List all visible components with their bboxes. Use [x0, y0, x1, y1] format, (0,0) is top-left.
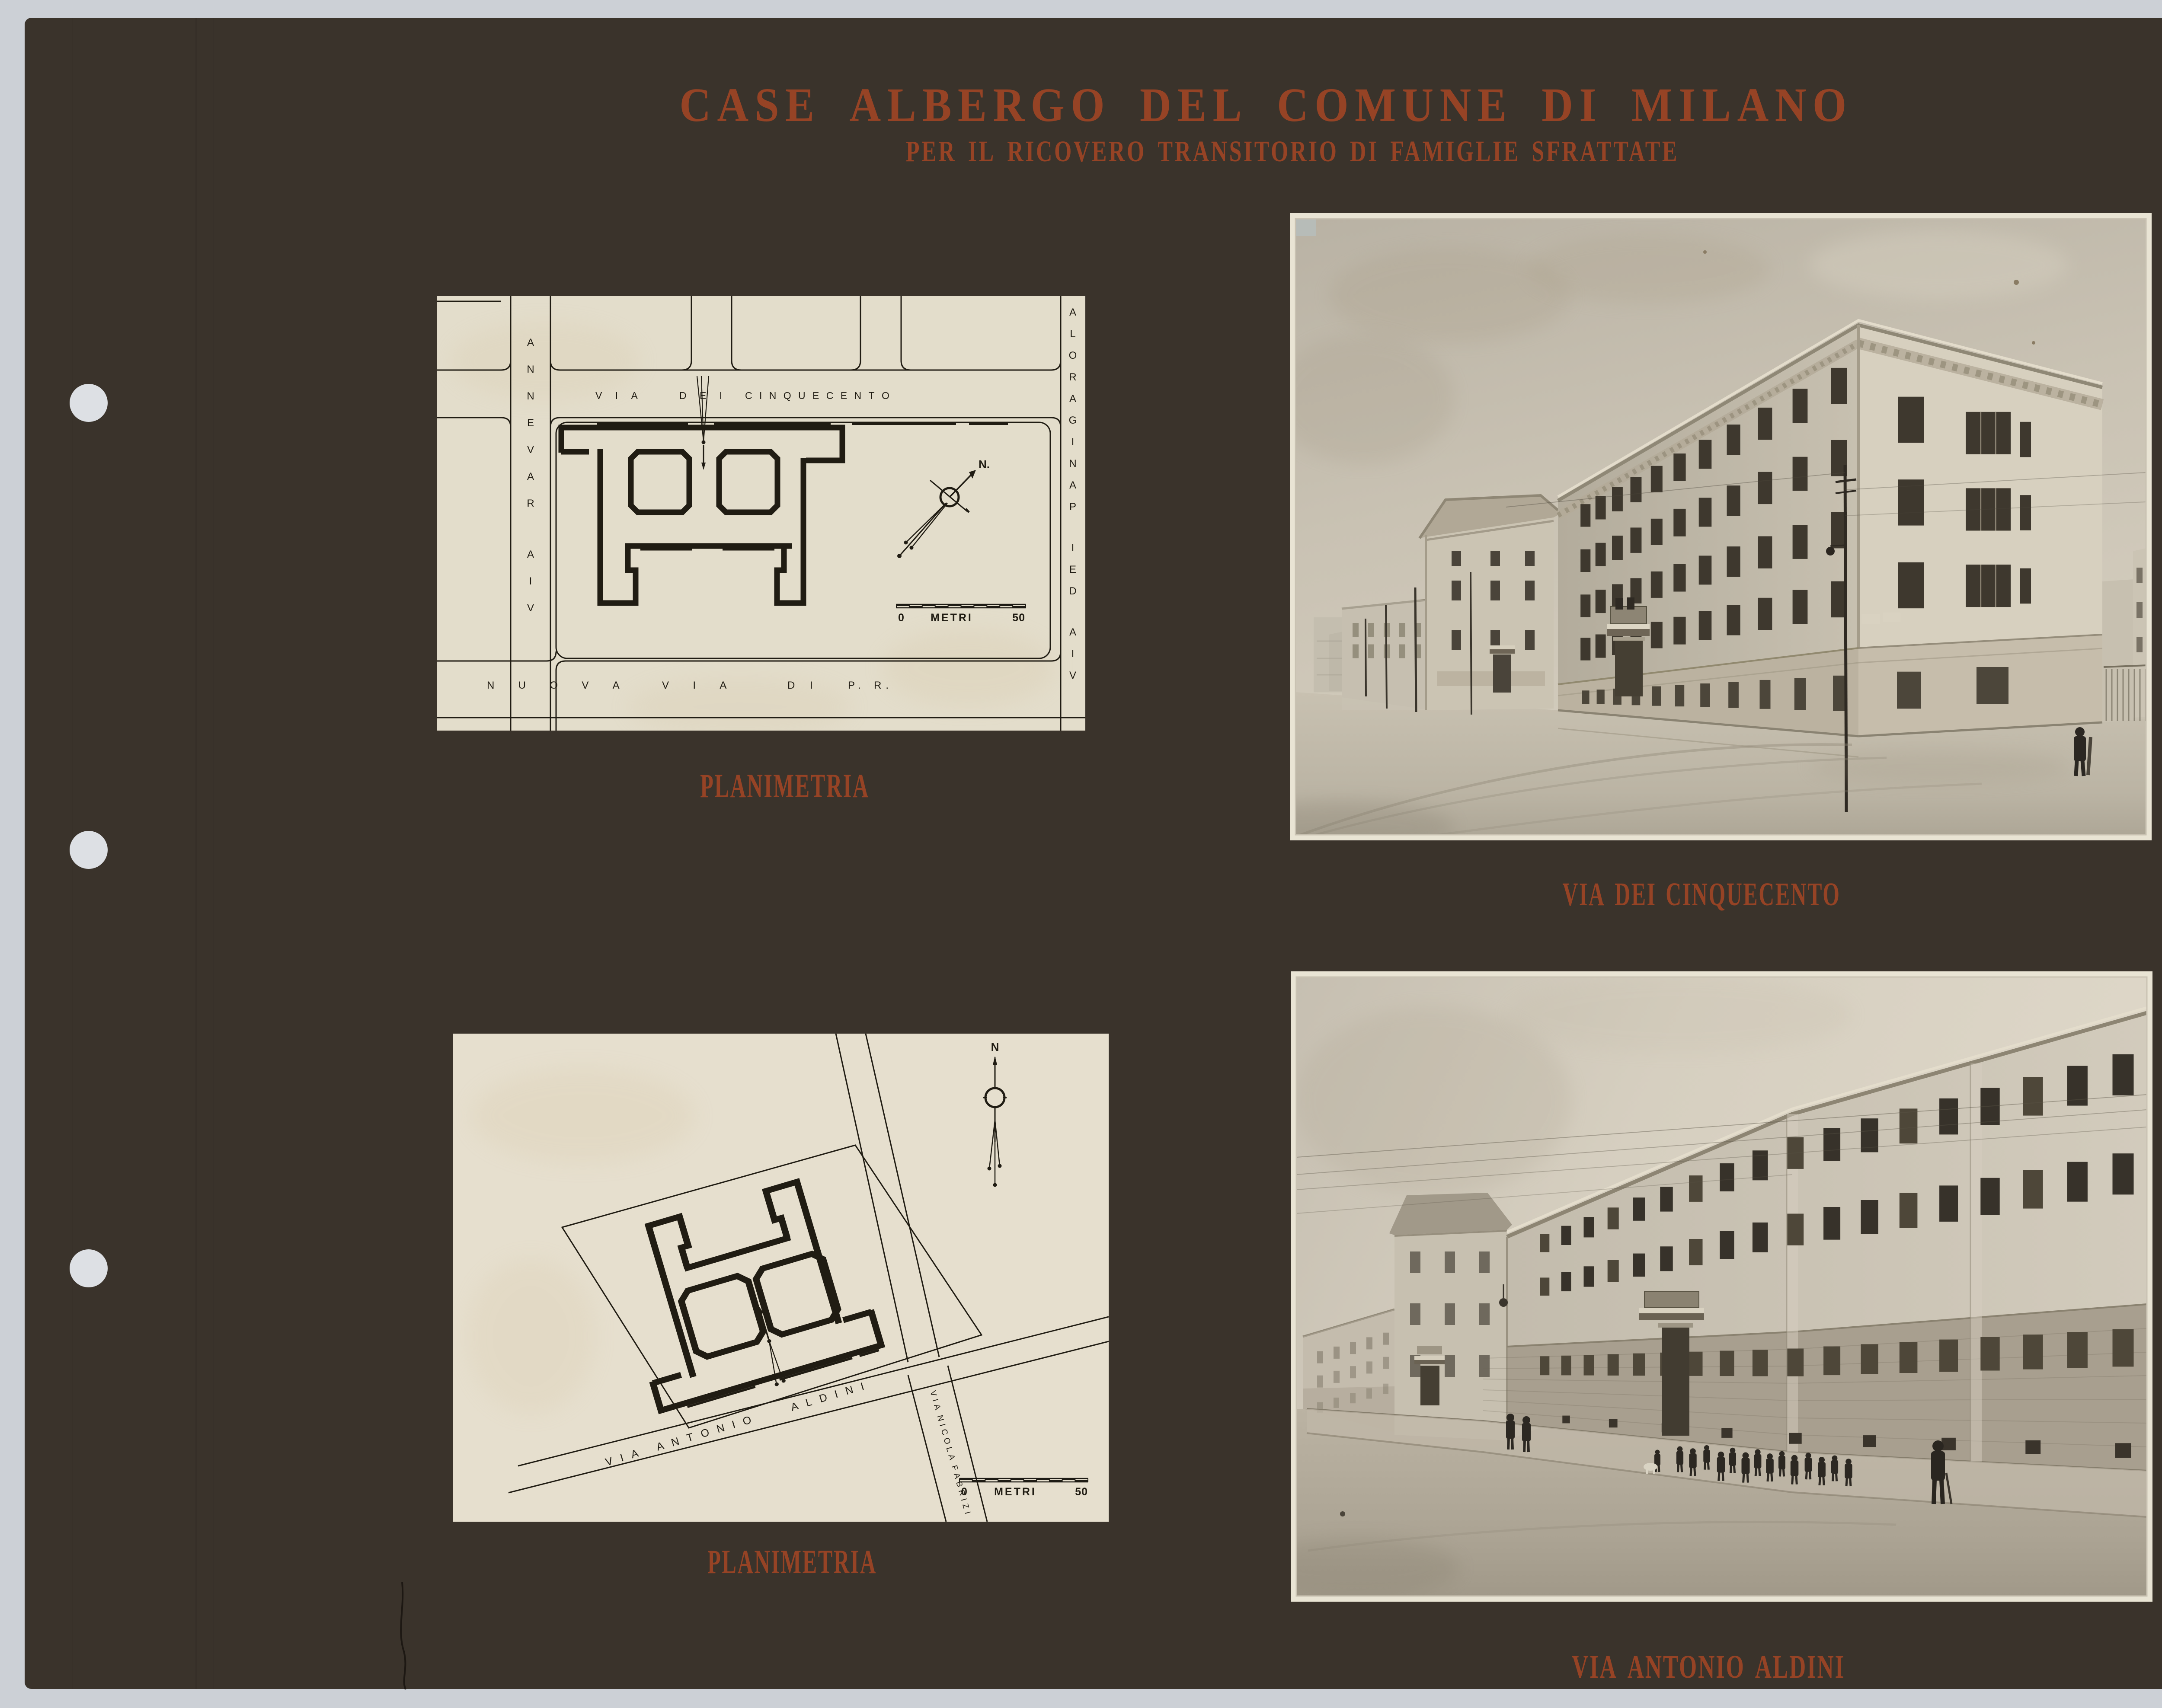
svg-text:D: D	[1069, 585, 1076, 597]
svg-text:N: N	[1069, 458, 1076, 469]
svg-text:A: A	[1069, 393, 1076, 405]
svg-text:P.: P.	[848, 680, 865, 691]
svg-text:O: O	[1069, 350, 1077, 361]
svg-text:D E I: D E I	[679, 390, 727, 401]
svg-text:50: 50	[1012, 612, 1025, 624]
svg-text:V: V	[527, 444, 534, 456]
svg-text:R.: R.	[874, 680, 893, 691]
svg-text:A: A	[527, 337, 534, 348]
svg-text:V I A: V I A	[595, 390, 643, 401]
svg-text:D I: D I	[787, 680, 819, 691]
svg-text:N: N	[527, 364, 534, 375]
svg-text:N: N	[527, 390, 534, 402]
svg-text:I: I	[529, 575, 532, 587]
svg-text:V I A: V I A	[662, 680, 732, 691]
svg-text:A: A	[527, 471, 534, 482]
svg-text:0: 0	[898, 612, 904, 624]
svg-text:N U O V A: N U O V A	[487, 680, 626, 691]
svg-text:V: V	[527, 602, 534, 614]
svg-text:METRI: METRI	[994, 1486, 1036, 1498]
svg-text:L: L	[1070, 328, 1075, 340]
svg-text:E: E	[1069, 564, 1076, 575]
svg-text:A: A	[527, 549, 534, 560]
svg-text:A: A	[1069, 626, 1076, 638]
svg-text:R: R	[1069, 371, 1076, 383]
svg-text:I: I	[1071, 436, 1075, 448]
svg-text:METRI: METRI	[931, 612, 973, 624]
svg-text:P: P	[1069, 501, 1076, 513]
svg-text:C I N Q U E C E N T O: C I N Q U E C E N T O	[745, 390, 892, 401]
svg-text:I: I	[1071, 542, 1075, 554]
svg-text:A: A	[1069, 479, 1076, 491]
svg-text:I: I	[1071, 648, 1075, 660]
svg-text:N: N	[991, 1041, 999, 1054]
svg-text:N.: N.	[979, 458, 990, 471]
svg-text:R: R	[527, 498, 534, 509]
svg-text:G: G	[1069, 415, 1077, 426]
svg-text:50: 50	[1075, 1486, 1088, 1498]
svg-text:A: A	[1069, 306, 1076, 318]
svg-text:V: V	[1069, 670, 1076, 681]
svg-text:E: E	[527, 417, 534, 429]
